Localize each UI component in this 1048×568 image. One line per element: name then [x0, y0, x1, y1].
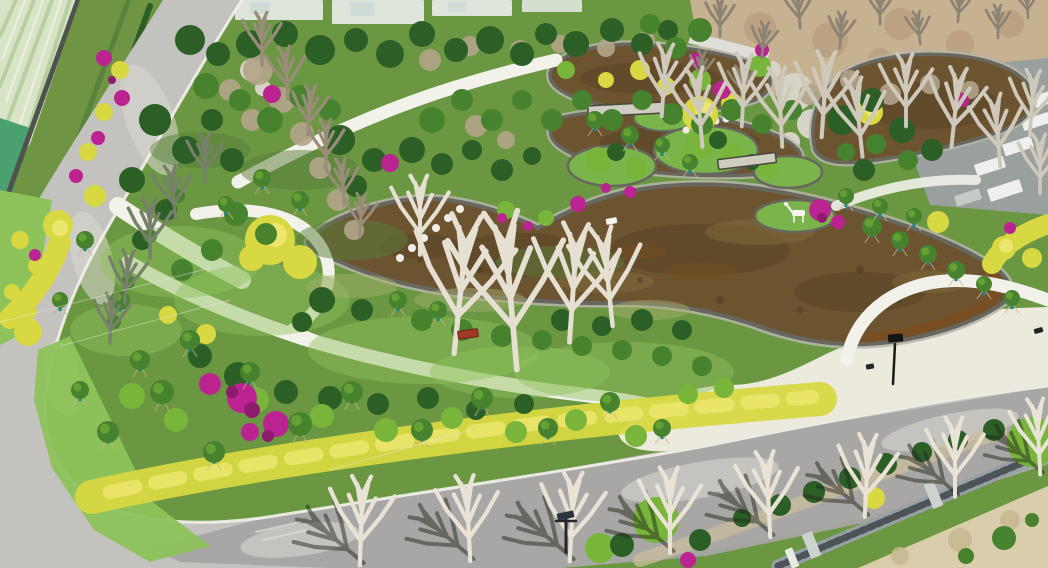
bougainvillea — [114, 90, 130, 106]
dark-shrub — [514, 394, 534, 414]
canopy-highlight — [1006, 292, 1013, 299]
dark-shrub — [139, 104, 171, 136]
island-shrub — [625, 157, 647, 179]
aerial-park-photo — [0, 0, 1048, 568]
dark-shrub — [351, 299, 373, 321]
dark-shrub — [399, 137, 425, 163]
green-shrub — [688, 18, 712, 42]
canopy-highlight — [978, 278, 985, 285]
water-debris — [417, 257, 423, 263]
canopy-highlight — [865, 219, 874, 228]
dark-shrub — [491, 159, 513, 181]
canopy-highlight — [243, 365, 252, 374]
bright-shrub — [164, 408, 188, 432]
green-shrub — [171, 259, 193, 281]
canopy-highlight — [293, 193, 301, 201]
dark-shrub — [305, 35, 335, 65]
island-shrub — [607, 143, 625, 161]
green-shrub — [752, 114, 772, 134]
dark-shrub — [444, 38, 468, 62]
dark-shrub — [409, 21, 435, 47]
green-shrub — [257, 107, 283, 133]
yellow-shrub — [927, 211, 949, 233]
green-shrub — [491, 325, 513, 347]
canopy-highlight — [391, 293, 399, 301]
sand-shrub — [1025, 513, 1039, 527]
dark-shrub — [220, 148, 244, 172]
yellow-shrub — [23, 305, 37, 319]
building — [522, 0, 582, 12]
bougainvillea — [91, 131, 105, 145]
green-shrub — [193, 73, 219, 99]
green-shrub — [481, 109, 503, 131]
canopy-highlight — [893, 233, 901, 241]
sand-mottle — [891, 547, 909, 565]
dark-shrub — [658, 20, 678, 40]
dirt-mottle — [884, 8, 916, 40]
yellow-shrub — [239, 245, 265, 271]
green-shrub — [612, 340, 632, 360]
dark-shrub — [367, 393, 389, 415]
green-shrub — [319, 99, 341, 121]
dark-shrub — [431, 153, 453, 175]
bougainvillea — [381, 154, 399, 172]
green-shrub — [201, 239, 223, 261]
dark-shrub — [462, 140, 482, 160]
sand-shrub — [958, 548, 974, 564]
dark-shrub — [344, 28, 368, 52]
canopy-highlight — [220, 198, 227, 205]
dark-shrub — [535, 23, 557, 45]
canopy-highlight — [684, 156, 691, 163]
green-shrub — [451, 89, 473, 111]
bougainvillea-shade — [108, 76, 116, 84]
roadside-shrub — [689, 529, 711, 551]
bare-tree-canopy — [419, 49, 441, 71]
water-debris — [637, 277, 643, 283]
bougainvillea — [624, 186, 636, 198]
park-aerial-scene — [0, 0, 1048, 568]
bougainvillea — [601, 183, 611, 193]
park-lamp-head — [888, 333, 904, 342]
bright-shrub — [565, 409, 587, 431]
water-debris — [797, 307, 803, 313]
dark-shrub — [175, 25, 205, 55]
building — [332, 0, 424, 24]
dark-shrub — [292, 312, 312, 332]
bright-shrub — [678, 384, 698, 404]
bougainvillea — [199, 373, 221, 395]
canopy-highlight — [603, 395, 612, 404]
canopy-highlight — [431, 303, 439, 311]
bougainvillea — [570, 196, 586, 212]
dark-shrub — [853, 159, 875, 181]
dark-shrub — [119, 167, 145, 193]
yellow-shrub — [4, 284, 20, 300]
yellow-shrub — [84, 185, 106, 207]
dark-shrub — [672, 320, 692, 340]
bright-shrub — [441, 407, 463, 429]
bougainvillea — [1004, 222, 1016, 234]
dark-shrub — [417, 387, 439, 409]
bougainvillea — [69, 169, 83, 183]
building — [235, 0, 323, 20]
green-shrub — [652, 346, 672, 366]
dark-shrub — [476, 26, 504, 54]
yellow-shrub — [79, 143, 97, 161]
canopy-highlight — [921, 247, 929, 255]
canopy-highlight — [133, 353, 142, 362]
building-glass — [448, 2, 466, 12]
green-shrub — [837, 143, 855, 161]
dark-shrub — [631, 33, 653, 55]
canopy-highlight — [414, 422, 424, 432]
canopy-highlight — [840, 190, 847, 197]
green-shrub — [532, 330, 552, 350]
stepping-stone — [456, 205, 464, 213]
green-shrub — [601, 109, 623, 131]
bright-shrub — [119, 383, 145, 409]
stepping-stone — [408, 244, 416, 252]
dark-shrub — [274, 380, 298, 404]
building — [432, 0, 512, 16]
dark-shrub — [889, 117, 915, 143]
green-shrub — [229, 89, 251, 111]
dark-shrub — [376, 40, 404, 68]
bougainvillea-shade — [262, 430, 274, 442]
canopy-highlight — [153, 383, 164, 394]
green-shrub — [419, 107, 445, 133]
bright-shrub — [538, 210, 554, 226]
canopy-highlight — [78, 233, 86, 241]
yellow-shrub — [1022, 248, 1042, 268]
dark-shrub — [206, 42, 230, 66]
bright-shrub — [374, 418, 398, 442]
bougainvillea — [263, 85, 281, 103]
canopy-highlight — [344, 384, 354, 394]
dark-shrub — [309, 287, 335, 313]
canopy-highlight — [908, 210, 915, 217]
yellow-shrub-highlight — [52, 220, 68, 236]
deer-statue-body — [792, 210, 805, 216]
canopy-highlight — [54, 294, 61, 301]
green-shrub — [640, 14, 660, 34]
stepping-stone — [396, 254, 404, 262]
dark-shrub — [921, 139, 943, 161]
canopy-highlight — [623, 128, 631, 136]
yellow-shrub — [598, 72, 614, 88]
silt-patch — [662, 263, 738, 281]
canopy-highlight — [255, 171, 263, 179]
green-shrub — [898, 150, 918, 170]
building-glass — [350, 2, 374, 16]
canopy-highlight — [73, 383, 81, 391]
bougainvillea-shade — [244, 402, 260, 418]
sand-shrub — [992, 526, 1016, 550]
yellow-shrub — [111, 61, 129, 79]
bare-tree-canopy — [309, 157, 331, 179]
bougainvillea — [680, 552, 696, 568]
yellow-shrub-highlight — [999, 239, 1013, 253]
canopy-highlight — [541, 421, 550, 430]
stepping-stone — [432, 224, 440, 232]
bright-shrub — [714, 378, 734, 398]
green-shrub — [692, 356, 712, 376]
water-debris — [856, 266, 864, 274]
green-shrub — [866, 134, 886, 154]
island-shrub — [709, 131, 727, 149]
dark-shrub — [631, 309, 653, 331]
canopy-highlight — [206, 444, 216, 454]
green-shrub — [572, 90, 592, 110]
green-shrub — [255, 223, 277, 245]
canopy-highlight — [655, 421, 663, 429]
canopy-highlight — [588, 113, 596, 121]
bougainvillea — [29, 249, 41, 261]
green-shrub — [632, 90, 652, 110]
bright-shrub — [505, 421, 527, 443]
bougainvillea-shade — [817, 213, 827, 223]
dark-shrub — [592, 316, 612, 336]
yellow-shrub — [95, 103, 113, 121]
water-debris — [716, 296, 724, 304]
bougainvillea — [96, 50, 112, 66]
bougainvillea — [497, 213, 507, 223]
canopy-highlight — [656, 139, 663, 146]
dark-shrub — [523, 147, 541, 165]
yellow-shrub — [11, 231, 29, 249]
canopy-highlight — [949, 263, 957, 271]
bright-shrub — [625, 425, 647, 447]
bright-shrub — [310, 404, 334, 428]
canopy-highlight — [874, 200, 881, 207]
canopy-highlight — [291, 415, 302, 426]
canopy-highlight — [100, 424, 110, 434]
bougainvillea — [241, 423, 259, 441]
dark-shrub — [201, 109, 223, 131]
deer-statue-head — [784, 202, 788, 206]
dark-shrub — [510, 42, 534, 66]
green-shrub — [541, 109, 563, 131]
bougainvillea — [523, 221, 533, 231]
bougainvillea-shade — [226, 386, 238, 398]
green-shrub — [572, 336, 592, 356]
canopy-highlight — [474, 390, 484, 400]
yellow-shrub — [14, 318, 42, 346]
bougainvillea — [831, 215, 845, 229]
dark-shrub — [600, 18, 624, 42]
bright-shrub — [557, 61, 575, 79]
green-shrub — [512, 90, 532, 110]
canopy-highlight — [183, 333, 192, 342]
dark-shrub — [563, 31, 589, 57]
yellow-shrub — [283, 245, 317, 279]
bare-tree-canopy — [497, 131, 515, 149]
